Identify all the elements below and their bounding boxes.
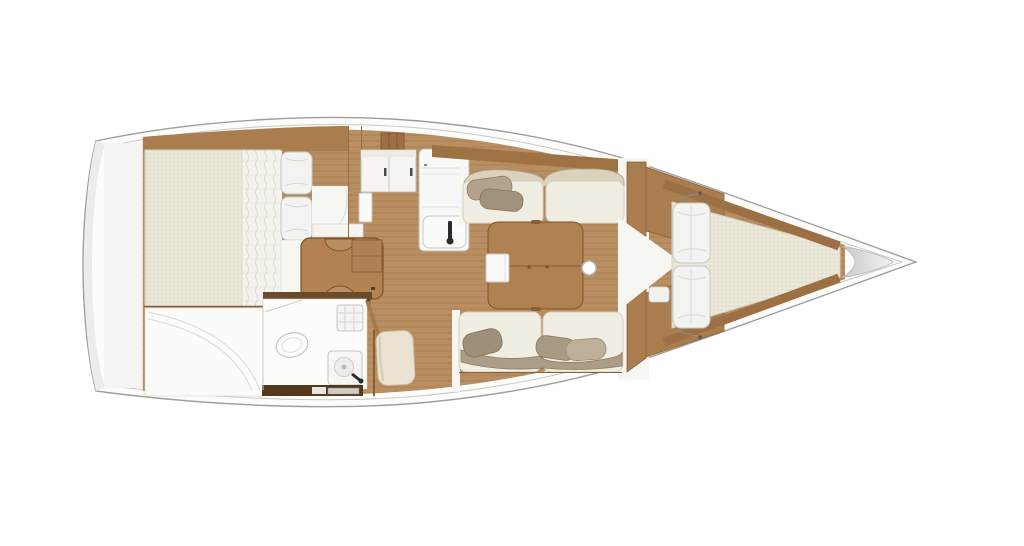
sink-faucet-base bbox=[447, 238, 454, 245]
head-forward-wall bbox=[263, 292, 372, 299]
washbasin bbox=[328, 351, 364, 385]
aft-cabin-door-panel bbox=[359, 193, 372, 222]
door-hinge bbox=[367, 299, 370, 302]
table-leaf bbox=[486, 254, 509, 282]
table-handle bbox=[531, 307, 541, 311]
sail-locker-floor bbox=[145, 308, 263, 396]
sole-hatch bbox=[649, 287, 669, 302]
settee-cushion bbox=[546, 181, 624, 223]
strut-fitting bbox=[698, 335, 702, 339]
galley-cabinets bbox=[361, 150, 416, 192]
yacht-floorplan bbox=[0, 0, 1024, 546]
cabinet-handle bbox=[384, 168, 387, 176]
nav-table-latch bbox=[371, 287, 375, 290]
pillow bbox=[281, 197, 312, 240]
head-step-inset bbox=[312, 387, 326, 394]
basin-faucet-base bbox=[359, 379, 364, 384]
head-step-inset bbox=[328, 388, 359, 394]
mast-post bbox=[582, 261, 596, 275]
doorway-bench bbox=[313, 224, 363, 237]
counter-latch bbox=[424, 164, 427, 166]
bulkhead-panel-top bbox=[627, 162, 646, 236]
cabinet-handle bbox=[410, 168, 413, 176]
aft-berth-duvet-quilting bbox=[242, 151, 282, 307]
strut-fitting bbox=[698, 191, 702, 195]
corridor-seat-cushion bbox=[376, 330, 416, 386]
sail-locker bbox=[145, 308, 263, 396]
stern-platform bbox=[104, 143, 144, 388]
settee-pillow bbox=[565, 338, 606, 362]
salon-table bbox=[486, 220, 583, 311]
companionway-steps bbox=[381, 133, 404, 151]
shower-drain bbox=[337, 305, 363, 331]
settee-pillow bbox=[479, 188, 524, 212]
floorplan-canvas bbox=[0, 0, 1024, 546]
table-handle bbox=[531, 220, 541, 224]
